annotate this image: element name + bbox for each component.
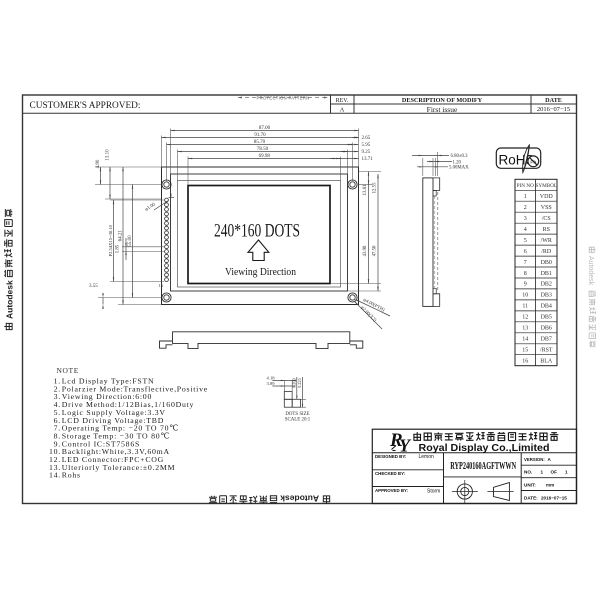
svg-text:64.21: 64.21 [119,230,124,242]
svg-text:9.25: 9.25 [362,150,371,155]
svg-text:Storm: Storm [427,488,440,494]
svg-text:CUSTOMER'S APPROVED:: CUSTOMER'S APPROVED: [30,101,141,111]
svg-text:CHECKED BY:: CHECKED BY: [375,471,406,476]
svg-text:DESCRIPTION OF MODIFY: DESCRIPTION OF MODIFY [402,97,483,104]
svg-text:OF: OF [551,470,558,475]
svg-text:UNIT:: UNIT: [524,482,536,487]
svg-text:14: 14 [522,337,528,343]
svg-text:/RD: /RD [541,249,552,255]
svg-text:Autodesk: Autodesk [5,280,15,319]
svg-text:2.65: 2.65 [362,136,371,141]
svg-text:14.: 14. [49,471,61,480]
svg-text:BLA: BLA [540,359,553,365]
svg-text:5.00MAX: 5.00MAX [449,166,469,171]
svg-text:/RST: /RST [540,348,553,354]
svg-text:5: 5 [524,238,527,244]
svg-text:1: 1 [565,470,568,475]
svg-text:69.98: 69.98 [259,154,271,159]
svg-text:16: 16 [159,283,164,288]
svg-text:2016−07−15: 2016−07−15 [541,495,567,500]
svg-text:4.18: 4.18 [267,376,276,381]
svg-text:DB4: DB4 [541,304,552,310]
svg-text:PIN NO: PIN NO [517,183,534,189]
svg-text:RYP240160AGFTWWN: RYP240160AGFTWWN [450,461,516,472]
svg-text:DB2: DB2 [541,282,552,288]
svg-text:85.70: 85.70 [254,140,266,145]
svg-text:43.98: 43.98 [363,245,368,256]
svg-text:Viewing Direction: Viewing Direction [225,267,296,278]
svg-text:2: 2 [524,205,527,211]
svg-text:3.89: 3.89 [267,381,276,386]
svg-text:13: 13 [522,326,528,332]
svg-text:78.50: 78.50 [257,147,269,152]
svg-text:First issue: First issue [427,105,458,114]
svg-text:/CS: /CS [542,216,551,222]
svg-text:13.71: 13.71 [362,157,374,162]
svg-text:10: 10 [522,293,528,299]
svg-text:91.70: 91.70 [254,133,266,138]
svg-text:1: 1 [541,470,544,475]
svg-text:Lemon: Lemon [419,454,435,460]
svg-text:REV.: REV. [336,98,349,104]
svg-text:Rohs: Rohs [62,471,81,480]
svg-text:DB1: DB1 [541,271,552,277]
svg-text:8: 8 [524,271,527,277]
svg-text:7: 7 [524,260,527,266]
svg-text:0.225: 0.225 [297,378,302,387]
svg-text:1.20: 1.20 [453,160,462,165]
svg-text:13.10: 13.10 [106,149,111,161]
svg-text:1: 1 [524,194,527,200]
svg-text:VERSION:: VERSION: [524,457,545,462]
svg-text:6: 6 [524,249,527,255]
svg-text:NOTE: NOTE [57,366,79,375]
svg-text:15: 15 [522,348,528,354]
svg-text:Autodesk: Autodesk [280,494,319,504]
svg-text:2016−07−15: 2016−07−15 [537,106,570,113]
svg-text:13.81: 13.81 [363,184,368,195]
svg-text:A: A [340,107,345,114]
svg-text:DATE:: DATE: [524,495,538,500]
svg-text:Autodesk: Autodesk [587,256,594,286]
svg-text:DB0: DB0 [541,260,552,266]
svg-text:55.00: 55.00 [128,235,133,247]
svg-text:mm: mm [546,482,554,487]
svg-text:5.95: 5.95 [362,143,371,148]
svg-text:3.55: 3.55 [89,284,98,289]
svg-text:P2.54X15=38.10: P2.54X15=38.10 [108,224,113,256]
svg-text:DB6: DB6 [541,326,552,332]
svg-text:SYMBOL: SYMBOL [535,183,557,189]
svg-text:Royal Display Co.,Limited: Royal Display Co.,Limited [419,443,550,454]
svg-text:4: 4 [524,227,527,233]
svg-text:240*160 DOTS: 240*160 DOTS [214,220,300,241]
svg-text:DB7: DB7 [541,337,552,343]
svg-text:DOTS SIZE: DOTS SIZE [285,412,309,417]
svg-text:6.80±0.3: 6.80±0.3 [451,154,469,159]
svg-text:DB5: DB5 [541,315,552,321]
svg-text:0.200: 0.200 [291,378,296,387]
svg-text:DB3: DB3 [541,293,552,299]
svg-text:NO.: NO. [524,470,532,475]
svg-text:VDD: VDD [540,194,554,200]
svg-text:RS: RS [543,227,550,233]
svg-text:11: 11 [522,304,528,310]
svg-text:87.00: 87.00 [259,126,271,131]
svg-text:12: 12 [522,315,528,321]
svg-text:DESIGNED BY:: DESIGNED BY: [375,454,407,459]
svg-text:12.55: 12.55 [373,182,378,193]
svg-text:APPROVED BY:: APPROVED BY: [375,488,409,493]
svg-text:DATE: DATE [545,97,562,104]
svg-text:16: 16 [522,359,528,365]
svg-text:3: 3 [524,216,527,222]
svg-text:9: 9 [524,282,527,288]
svg-text:47.50: 47.50 [373,245,378,256]
svg-text:SCALE 20:1: SCALE 20:1 [285,418,311,423]
svg-text:1.85: 1.85 [116,244,121,253]
svg-text:4.80: 4.80 [96,159,101,168]
svg-text:PROTECTION PATTERN: PROTECTION PATTERN [257,95,310,100]
svg-text:VSS: VSS [541,205,552,211]
svg-text:1: 1 [171,193,173,198]
svg-text:/WR: /WR [541,238,552,244]
